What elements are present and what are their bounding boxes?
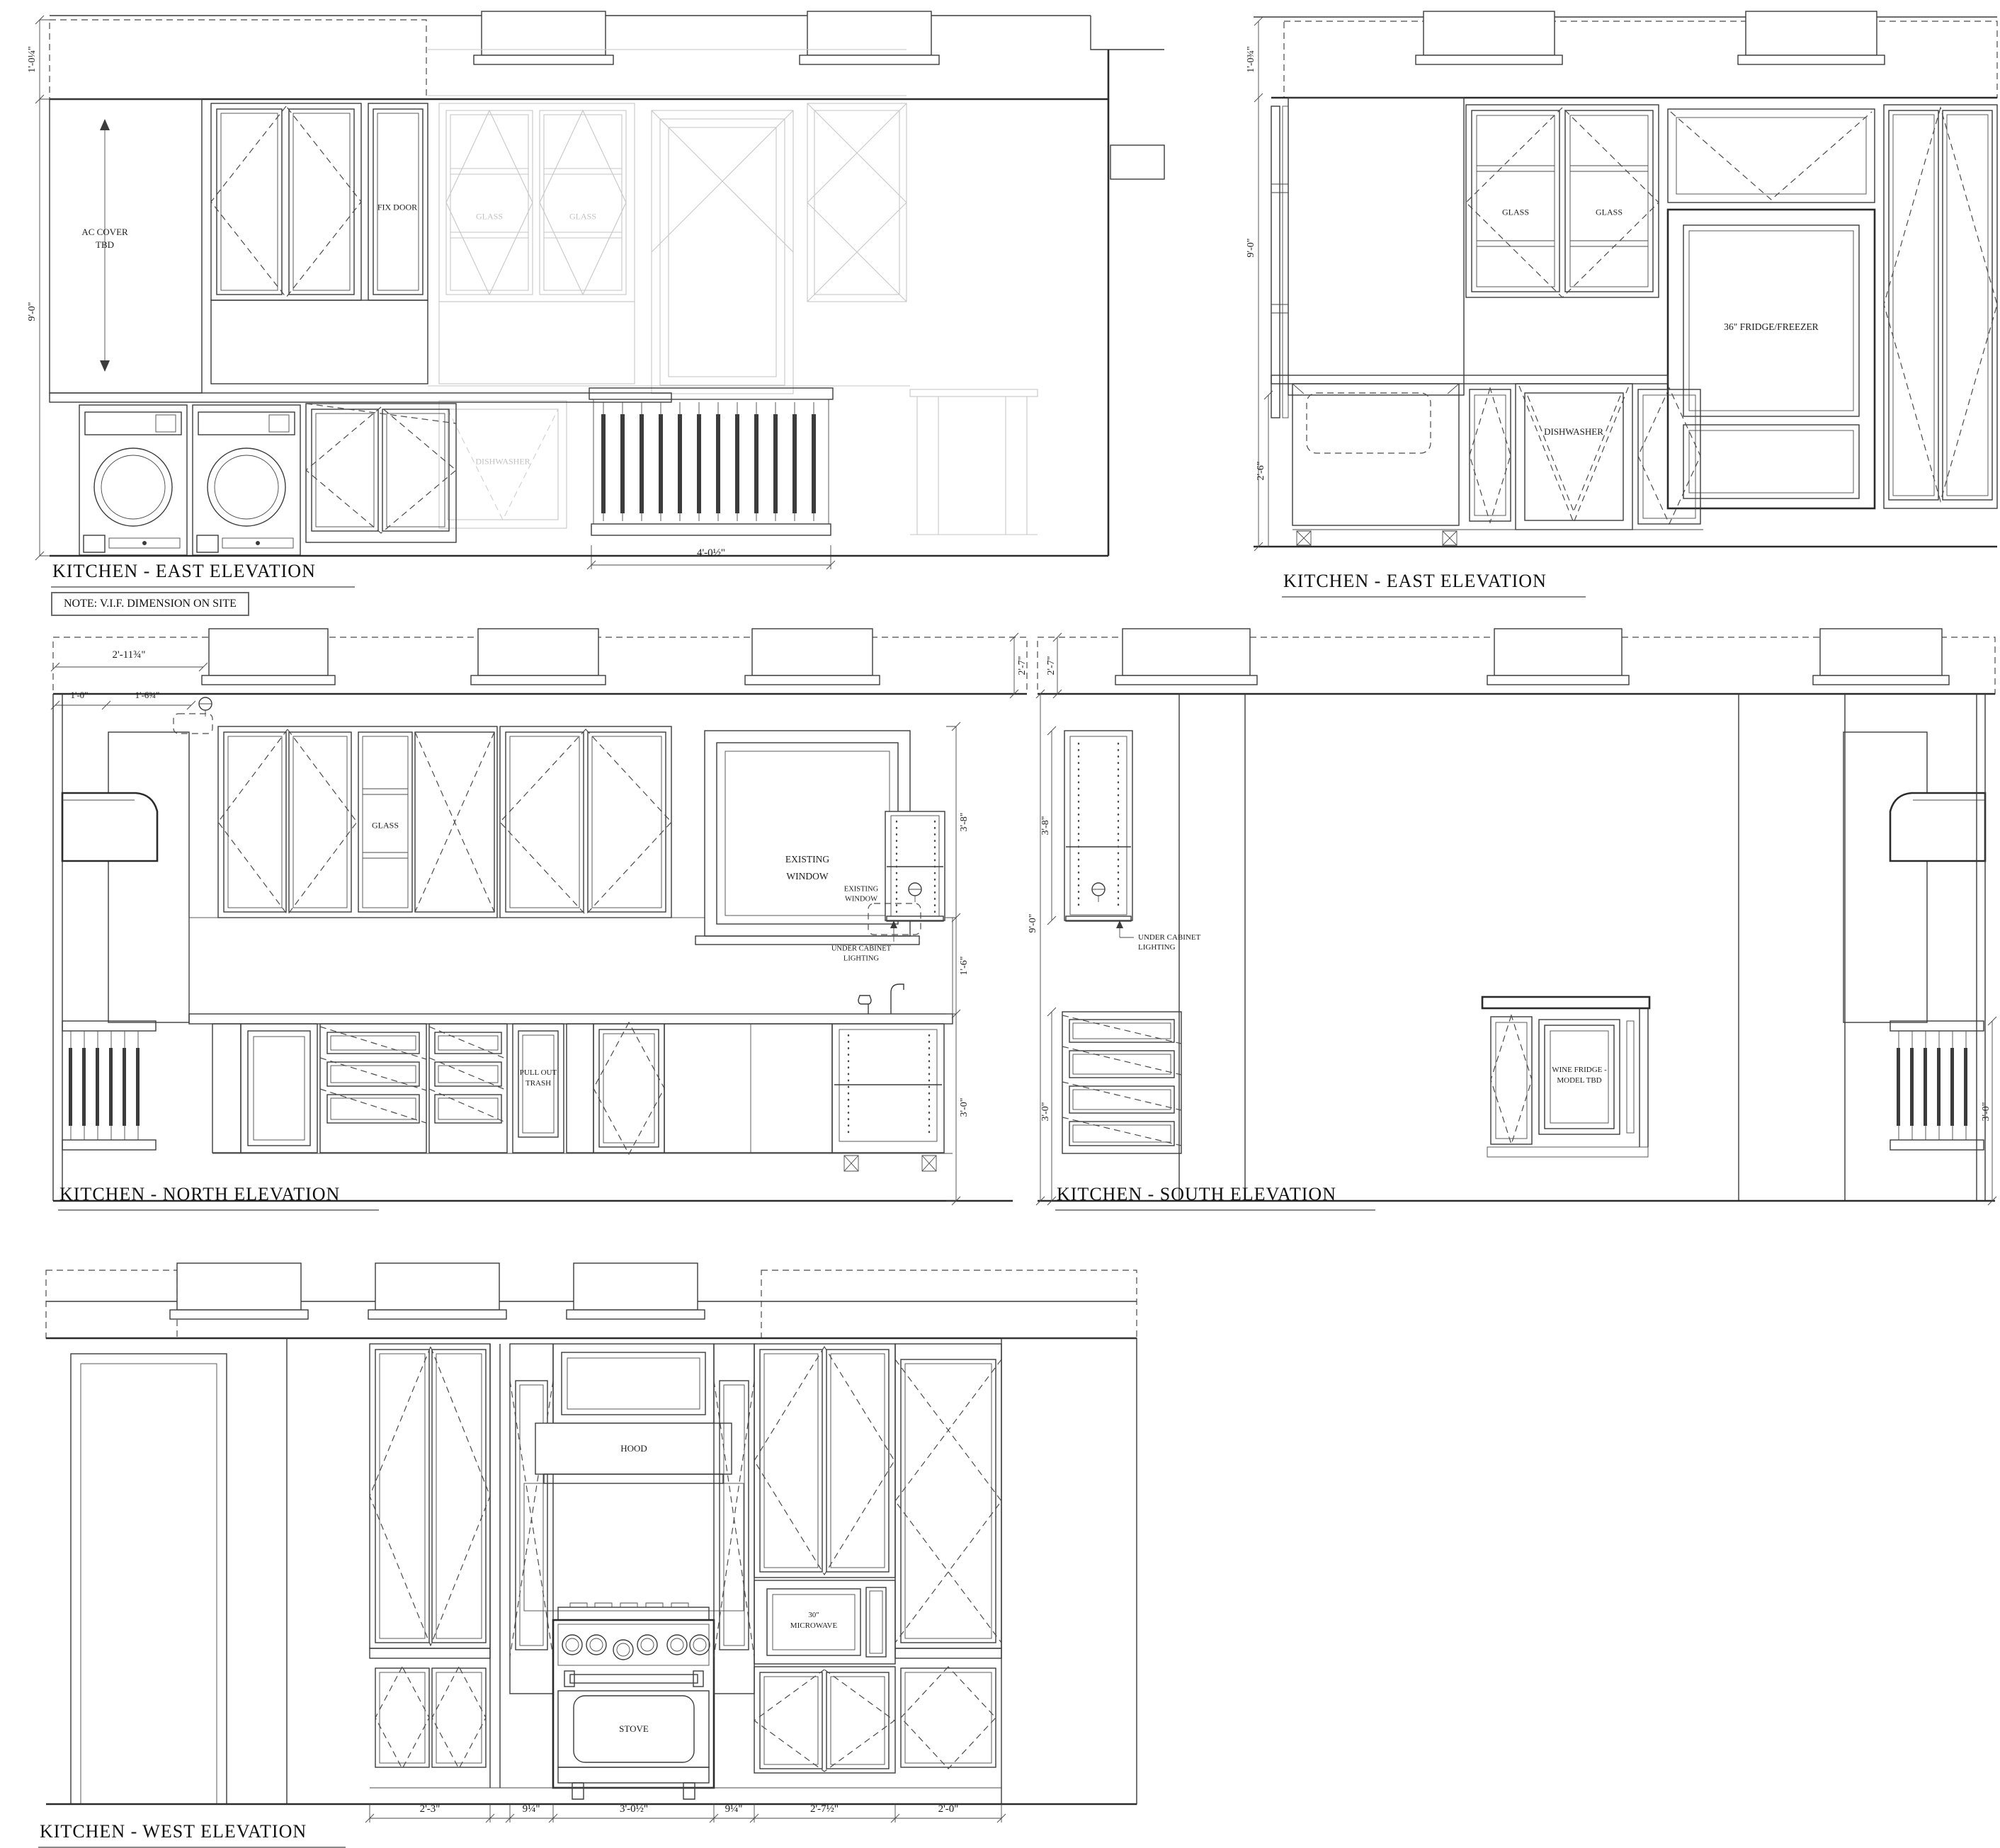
vif-note: NOTE: V.I.F. DIMENSION ON SITE	[51, 592, 249, 616]
stove-label: STOVE	[619, 1724, 649, 1734]
tile-chimney	[1843, 732, 1927, 1022]
dryer	[193, 405, 300, 555]
elevation-east-fridge: GLASS GLASS 36" FRIDGE/FREEZER DISHWASHE…	[1243, 7, 2000, 612]
countertop	[50, 393, 671, 402]
crown-cap	[368, 1263, 506, 1319]
tile-backsplash	[211, 300, 428, 384]
tall-cabinet-right	[895, 1344, 1001, 1769]
elevation-title: KITCHEN - EAST ELEVATION	[1282, 571, 1586, 598]
ac-cover-label-line1: AC COVER	[81, 227, 127, 237]
elevation-west-drawing	[28, 1260, 1176, 1845]
crown-cap	[1813, 629, 1949, 685]
crown-cap	[745, 629, 880, 685]
dimension-label: 3'-0½"	[620, 1804, 648, 1815]
elevation-title: KITCHEN - WEST ELEVATION	[38, 1821, 346, 1848]
drawing-sheet: AC COVER TBD FIX DOOR GLASS GLASS DISHWA…	[0, 0, 2000, 1847]
hood-cabinet	[553, 1344, 714, 1423]
tile-backsplash	[524, 1483, 744, 1611]
dimension-right	[946, 633, 1018, 1205]
dimension-label: 9¼"	[725, 1804, 743, 1815]
radiator-small	[1890, 1021, 1984, 1150]
hood-side-profile	[62, 793, 157, 861]
dimension-left-soffit-label: 2'-7"	[1046, 656, 1057, 675]
hood-side-profile	[1890, 793, 1985, 861]
dimension-backsplash-label: 1'-6"	[959, 957, 970, 976]
glass-label: GLASS	[476, 212, 503, 222]
pull-out-trash-label-line1: PULL OUT	[520, 1069, 557, 1078]
dimension-height-label: 9'-0"	[27, 302, 38, 321]
crown-cap	[1487, 629, 1629, 685]
dimension-soffit-label: 1'-0¾"	[1246, 46, 1257, 72]
hood-label: HOOD	[620, 1444, 647, 1454]
dishwasher-label: DISHWASHER	[475, 457, 530, 467]
crown-cap	[474, 11, 613, 64]
dimension-base-label: 2'-6"	[1256, 462, 1267, 481]
radiator	[589, 388, 833, 535]
fridge-freezer	[1668, 109, 1875, 508]
countertop	[189, 1014, 953, 1024]
faucet	[858, 984, 904, 1014]
open-shelf-cabinet	[885, 811, 945, 921]
fridge-label: 36" FRIDGE/FREEZER	[1724, 322, 1818, 332]
flanking-pillar-left	[510, 1344, 553, 1694]
tall-cabinet-left	[370, 1344, 490, 1769]
fix-door-label: FIX DOOR	[377, 203, 417, 212]
dimension-left	[35, 16, 50, 560]
glass-label: GLASS	[1596, 208, 1623, 217]
wine-fridge-label-line2: MODEL TBD	[1557, 1077, 1601, 1085]
base-cabinets	[212, 1022, 832, 1154]
dimension-label: 9¼"	[523, 1804, 540, 1815]
microwave-column	[754, 1344, 895, 1773]
dimension-radiator-label: 4'-0½"	[697, 548, 725, 559]
under-cabinet-lighting-label-line2: LIGHTING	[843, 954, 879, 962]
glass-label: GLASS	[1502, 208, 1529, 217]
dimension-height-label: 9'-0"	[1028, 914, 1039, 933]
ac-cover-label-line2: TBD	[96, 240, 114, 250]
crown-cap	[1115, 629, 1257, 685]
under-cabinet-lighting-label-line2: LIGHTING	[1138, 943, 1176, 952]
elevation-south-drawing	[1030, 626, 2000, 1217]
crown-cap	[800, 11, 939, 64]
crown-cap	[471, 629, 606, 685]
dimension-right-soffit-label: 2'-7"	[1017, 656, 1028, 675]
tile-chimney	[108, 732, 189, 1022]
elevation-east-laundry: AC COVER TBD FIX DOOR GLASS GLASS DISHWA…	[28, 7, 1169, 620]
under-cabinet-lighting-label-line1: UNDER CABINET	[1138, 933, 1200, 942]
dimension-uppers-label: 3'-8"	[1040, 816, 1052, 835]
light-fixture-dashed	[174, 714, 212, 734]
base-drawer-stack	[1062, 1012, 1181, 1153]
sink-base-cabinet	[1292, 384, 1459, 525]
outlet-symbol	[1092, 883, 1105, 902]
dimension-soffit-b: 1'-6¾"	[135, 690, 160, 700]
base-door	[1470, 388, 1511, 523]
window-trim	[1271, 106, 1288, 418]
dimension-base-label: 3'-0"	[1040, 1102, 1052, 1122]
glass-label: GLASS	[372, 821, 399, 831]
dimension-soffit-label: 1'-0¼"	[27, 46, 38, 72]
dishwasher-label: DISHWASHER	[1544, 427, 1603, 437]
elevation-title: KITCHEN - EAST ELEVATION	[51, 561, 355, 588]
pull-out-trash-label-line2: TRASH	[525, 1080, 551, 1088]
base-cabinet-doors	[306, 404, 456, 542]
left-wall-door	[71, 1338, 287, 1804]
tall-pantry-cabinets	[1884, 105, 1997, 508]
base-door	[1638, 388, 1700, 524]
crown-cap	[202, 629, 335, 685]
dimension-height-label: 9'-0"	[1246, 239, 1257, 258]
open-sink-cabinet	[832, 1024, 944, 1171]
radiator-small	[62, 1021, 156, 1150]
leader-under-cabinet	[1116, 920, 1134, 937]
washer	[79, 405, 187, 555]
elevation-south: UNDER CABINET LIGHTING WINE FRIDGE - MOD…	[1030, 626, 2000, 1217]
existing-window-label-line1: EXISTING	[785, 855, 829, 865]
tile-wall	[1001, 1338, 1137, 1804]
crown-cap	[170, 1263, 308, 1319]
dimension-soffit-total: 2'-11¾"	[112, 650, 145, 661]
crown-cap	[1416, 11, 1562, 64]
microwave-label-line1: 30"	[808, 1612, 819, 1620]
dimension-label: 2'-0"	[938, 1804, 959, 1815]
microwave-label-line2: MICROWAVE	[790, 1622, 837, 1631]
ac-cover-panel	[50, 99, 202, 393]
crown-cap	[1738, 11, 1885, 64]
dimension-base-label: 3'-0"	[959, 1098, 970, 1117]
elevation-east-fridge-drawing	[1243, 7, 2000, 612]
upper-cabinet-doors	[211, 103, 361, 300]
dimension-uppers-label: 3'-8"	[959, 813, 970, 832]
under-cabinet-lighting-label-line1: UNDER CABINET	[831, 945, 891, 952]
existing-window-small-label-line1: EXISTING	[844, 885, 878, 893]
upper-cabinets	[218, 726, 497, 918]
upper-cabinets-2	[500, 726, 671, 918]
existing-window-label-line2: WINDOW	[786, 872, 828, 882]
elevation-title: KITCHEN - SOUTH ELEVATION	[1055, 1184, 1375, 1211]
dimension-chain	[365, 1804, 1006, 1823]
wine-fridge-label-line1: WINE FRIDGE -	[1552, 1066, 1607, 1075]
dimension-label: 2'-3"	[420, 1804, 441, 1815]
stove	[553, 1603, 714, 1799]
elevation-east-laundry-drawing	[28, 7, 1169, 620]
countertop	[1271, 375, 1668, 384]
dimension-soffit	[51, 663, 208, 709]
glass-label: GLASS	[569, 212, 596, 222]
flanking-pillar-right	[714, 1344, 754, 1694]
dimension-label: 2'-7½"	[810, 1804, 839, 1815]
tile-backsplash	[1288, 98, 1464, 395]
dimension-right-base-label: 3'-0"	[1981, 1102, 1992, 1122]
existing-window-small-label-line2: WINDOW	[845, 895, 877, 903]
dishwasher-panel	[1516, 384, 1632, 530]
elevation-west: HOOD 30" MICROWAVE STOVE 2'-3" 9¼" 3'-0½…	[28, 1260, 1176, 1845]
elevation-title: KITCHEN - NORTH ELEVATION	[58, 1184, 379, 1211]
elevation-north: 2'-11¾" 1'-0" 1'-6¾" GLASS EXISTING WIND…	[28, 626, 1034, 1217]
dimension-soffit-a: 1'-0"	[71, 690, 89, 700]
elevation-north-drawing	[28, 626, 1034, 1217]
crown-cap	[567, 1263, 705, 1319]
glass-upper-cabinets	[1466, 105, 1659, 297]
